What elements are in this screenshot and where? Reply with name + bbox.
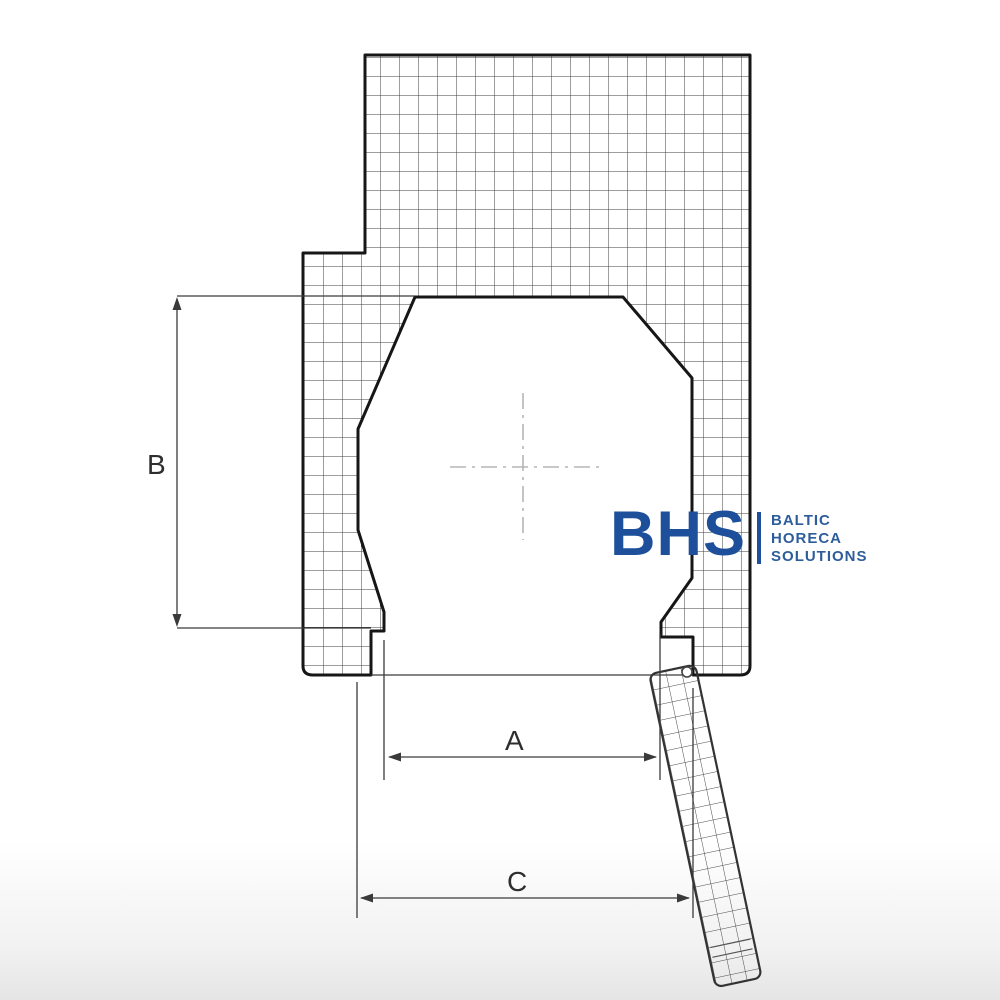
logo-brand-text: BHS bbox=[610, 505, 746, 566]
dimension-label-a: A bbox=[505, 725, 524, 757]
diagram-canvas: B A C BHS BALTIC HORECA SOLUTIONS bbox=[0, 0, 1000, 1000]
wall-section-hatched bbox=[303, 55, 750, 675]
flap-door bbox=[649, 665, 762, 988]
logo-line-horeca: HORECA bbox=[771, 530, 868, 548]
bhs-logo: BHS BALTIC HORECA SOLUTIONS bbox=[610, 505, 868, 566]
technical-drawing bbox=[0, 0, 1000, 1000]
logo-line-baltic: BALTIC bbox=[771, 512, 868, 530]
dimension-label-b: B bbox=[147, 449, 166, 481]
dimension-label-c: C bbox=[507, 866, 528, 898]
centerline-cross bbox=[450, 393, 600, 540]
dimension-a bbox=[384, 634, 660, 780]
logo-divider-bar bbox=[757, 512, 761, 564]
logo-line-solutions: SOLUTIONS bbox=[771, 548, 868, 566]
logo-text-block: BALTIC HORECA SOLUTIONS bbox=[771, 505, 868, 566]
hinge-pin bbox=[682, 667, 692, 677]
